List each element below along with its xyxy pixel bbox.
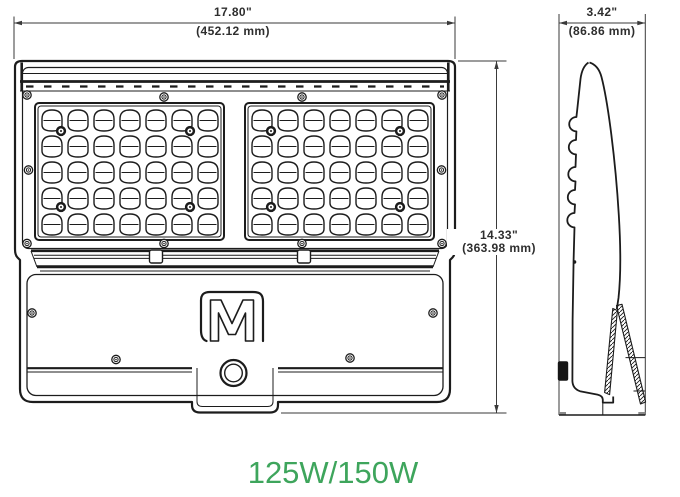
frame-screw xyxy=(24,166,32,174)
height-dimension-inches: 14.33" xyxy=(480,228,518,242)
depth-dimension-inches: 3.42" xyxy=(552,6,652,19)
panel-screw-center xyxy=(399,130,401,132)
frame-screw xyxy=(112,355,120,363)
frame-screw xyxy=(298,93,306,101)
panel-screw-center xyxy=(60,206,62,208)
hinge-clip xyxy=(150,250,163,263)
panel-screw-center xyxy=(270,206,272,208)
frame-screw xyxy=(438,91,446,99)
frame-screw xyxy=(23,239,31,247)
photocell-knob xyxy=(221,360,247,386)
side-profile-front xyxy=(567,63,613,403)
led-panel xyxy=(245,103,434,240)
width-dimension-inches: 17.80" xyxy=(163,6,303,19)
junction-block xyxy=(558,361,568,381)
panel-screw-center xyxy=(189,206,191,208)
frame-screw xyxy=(23,91,31,99)
hinge-clip xyxy=(298,250,311,263)
frame-screw xyxy=(429,309,437,317)
line-art xyxy=(0,0,680,497)
led-panel xyxy=(35,103,224,240)
side-screw xyxy=(573,260,576,263)
panel-screw-center xyxy=(399,206,401,208)
technical-drawing-canvas: 17.80" (452.12 mm) 14.33" (363.98 mm) 3.… xyxy=(0,0,680,497)
mount-arm-hatch xyxy=(617,304,646,404)
front-view xyxy=(15,61,455,413)
panel-screw-center xyxy=(60,130,62,132)
height-dimension: 14.33" (363.98 mm) xyxy=(447,229,551,255)
panel-screw-center xyxy=(189,130,191,132)
side-view xyxy=(558,14,646,415)
frame-screw xyxy=(28,309,36,317)
frame-screw xyxy=(160,239,168,247)
panel-screw-center xyxy=(270,130,272,132)
frame-screw xyxy=(346,354,354,362)
wattage-label: 125W/150W xyxy=(233,455,433,491)
width-dimension-mm: (452.12 mm) xyxy=(163,25,303,38)
frame-screw xyxy=(437,166,445,174)
height-dimension-mm: (363.98 mm) xyxy=(462,241,536,255)
frame-screw xyxy=(298,239,306,247)
frame-screw xyxy=(438,239,446,247)
depth-dimension-mm: (86.86 mm) xyxy=(552,25,652,38)
frame-screw xyxy=(160,93,168,101)
